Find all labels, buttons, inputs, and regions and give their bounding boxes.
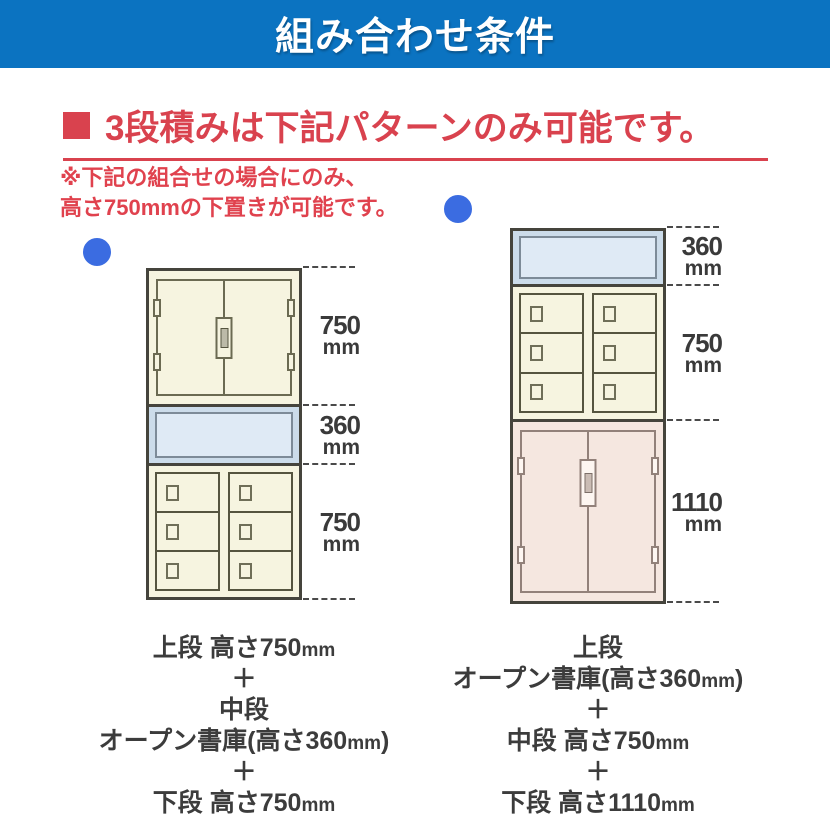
caption-line: オープン書庫(高さ360mm) [74,727,414,758]
dimension-dash [667,419,719,421]
locker-cell [230,513,291,552]
heading-text: 3段積みは下記パターンのみ可能です。 [105,100,714,151]
caption-line: 下段 高さ750mm [74,789,414,820]
dim-unit: mm [666,259,722,279]
dimension-dash [667,601,719,603]
knob-icon [530,345,543,361]
knob-icon [166,524,179,540]
dimension-label: 1110 mm [666,489,722,535]
page: 組み合わせ条件 3段積みは下記パターンのみ可能です。 ※下記の組合せの場合にのみ… [0,0,830,830]
door-area [156,279,292,396]
caption-line: オープン書庫(高さ360mm) [428,665,768,696]
dim-value: 360 [304,412,360,438]
hinge-icon [517,457,525,475]
locker-cell [521,334,582,373]
caption-line: ＋ [428,696,768,727]
hinge-icon [651,457,659,475]
locker-cell [521,295,582,334]
knob-icon [530,384,543,400]
knob-icon [603,345,616,361]
caption-line: 下段 高さ1110mm [428,789,768,820]
dimension-label: 750 mm [666,330,722,376]
dimension-label: 750 mm [304,312,360,358]
right-caption: 上段 オープン書庫(高さ360mm) ＋ 中段 高さ750mm ＋ 下段 高さ1… [428,634,768,820]
left-top-double-door-section [149,271,299,404]
caption-line: ＋ [74,758,414,789]
handle-grip [584,473,592,493]
dimension-dash [303,266,355,268]
locker-column [228,472,293,591]
handle-icon [580,459,597,507]
door-area [520,430,656,593]
locker-column [155,472,220,591]
locker-cell [157,552,218,589]
door-split [587,432,589,591]
dim-unit: mm [304,438,360,458]
dimension-dash [303,404,355,406]
dimension-label: 360 mm [666,233,722,279]
caption-line: 上段 [428,634,768,665]
locker-cell [230,474,291,513]
hinge-icon [287,299,295,317]
shelf-opening [155,412,293,458]
hinge-icon [287,353,295,371]
hinge-icon [651,546,659,564]
knob-icon [239,563,252,579]
hinge-icon [153,353,161,371]
dim-value: 750 [304,312,360,338]
square-bullet-icon [63,112,90,139]
dimension-dash [303,598,355,600]
left-bottom-locker-section [149,466,299,597]
locker-column [592,293,657,413]
hinge-icon [153,299,161,317]
locker-cell [594,334,655,373]
locker-cell [230,552,291,589]
dim-value: 360 [666,233,722,259]
knob-icon [166,563,179,579]
dim-value: 750 [666,330,722,356]
locker-cell [521,374,582,411]
locker-cell [594,295,655,334]
dim-value: 1110 [666,489,722,515]
knob-icon [530,306,543,322]
locker-cell [594,374,655,411]
note: ※下記の組合せの場合にのみ、 高さ750mmの下置きが可能です。 [60,163,398,223]
ok-circle-icon [83,238,111,266]
knob-icon [239,485,252,501]
left-middle-open-shelf-section [149,407,299,463]
dimension-dash [667,226,719,228]
caption-line: 上段 高さ750mm [74,634,414,665]
right-cabinet-diagram [510,228,666,604]
knob-icon [603,384,616,400]
handle-grip [220,328,228,348]
note-line-2: 高さ750mmの下置きが可能です。 [60,193,398,223]
caption-line: ＋ [428,758,768,789]
heading: 3段積みは下記パターンのみ可能です。 [63,100,768,161]
dimension-dash [303,463,355,465]
locker-cell [157,474,218,513]
locker-column [519,293,584,413]
dim-value: 750 [304,509,360,535]
right-top-open-shelf-section [513,231,663,284]
page-title: 組み合わせ条件 [275,6,555,62]
dimension-label: 750 mm [304,509,360,555]
right-bottom-double-door-section [513,422,663,601]
note-line-1: ※下記の組合せの場合にのみ、 [60,163,398,193]
hinge-icon [517,546,525,564]
dim-unit: mm [666,356,722,376]
dim-unit: mm [304,535,360,555]
caption-line: 中段 高さ750mm [428,727,768,758]
dimension-dash [667,284,719,286]
handle-icon [216,317,233,359]
left-caption: 上段 高さ750mm ＋ 中段 オープン書庫(高さ360mm) ＋ 下段 高さ7… [74,634,414,820]
dimension-label: 360 mm [304,412,360,458]
left-cabinet-diagram [146,268,302,600]
knob-icon [239,524,252,540]
dim-unit: mm [304,338,360,358]
knob-icon [166,485,179,501]
right-middle-locker-section [513,287,663,419]
ok-circle-icon [444,195,472,223]
dim-unit: mm [666,515,722,535]
caption-line: ＋ [74,665,414,696]
header-bar: 組み合わせ条件 [0,0,830,68]
knob-icon [603,306,616,322]
caption-line: 中段 [74,696,414,727]
locker-cell [157,513,218,552]
shelf-opening [519,236,657,279]
